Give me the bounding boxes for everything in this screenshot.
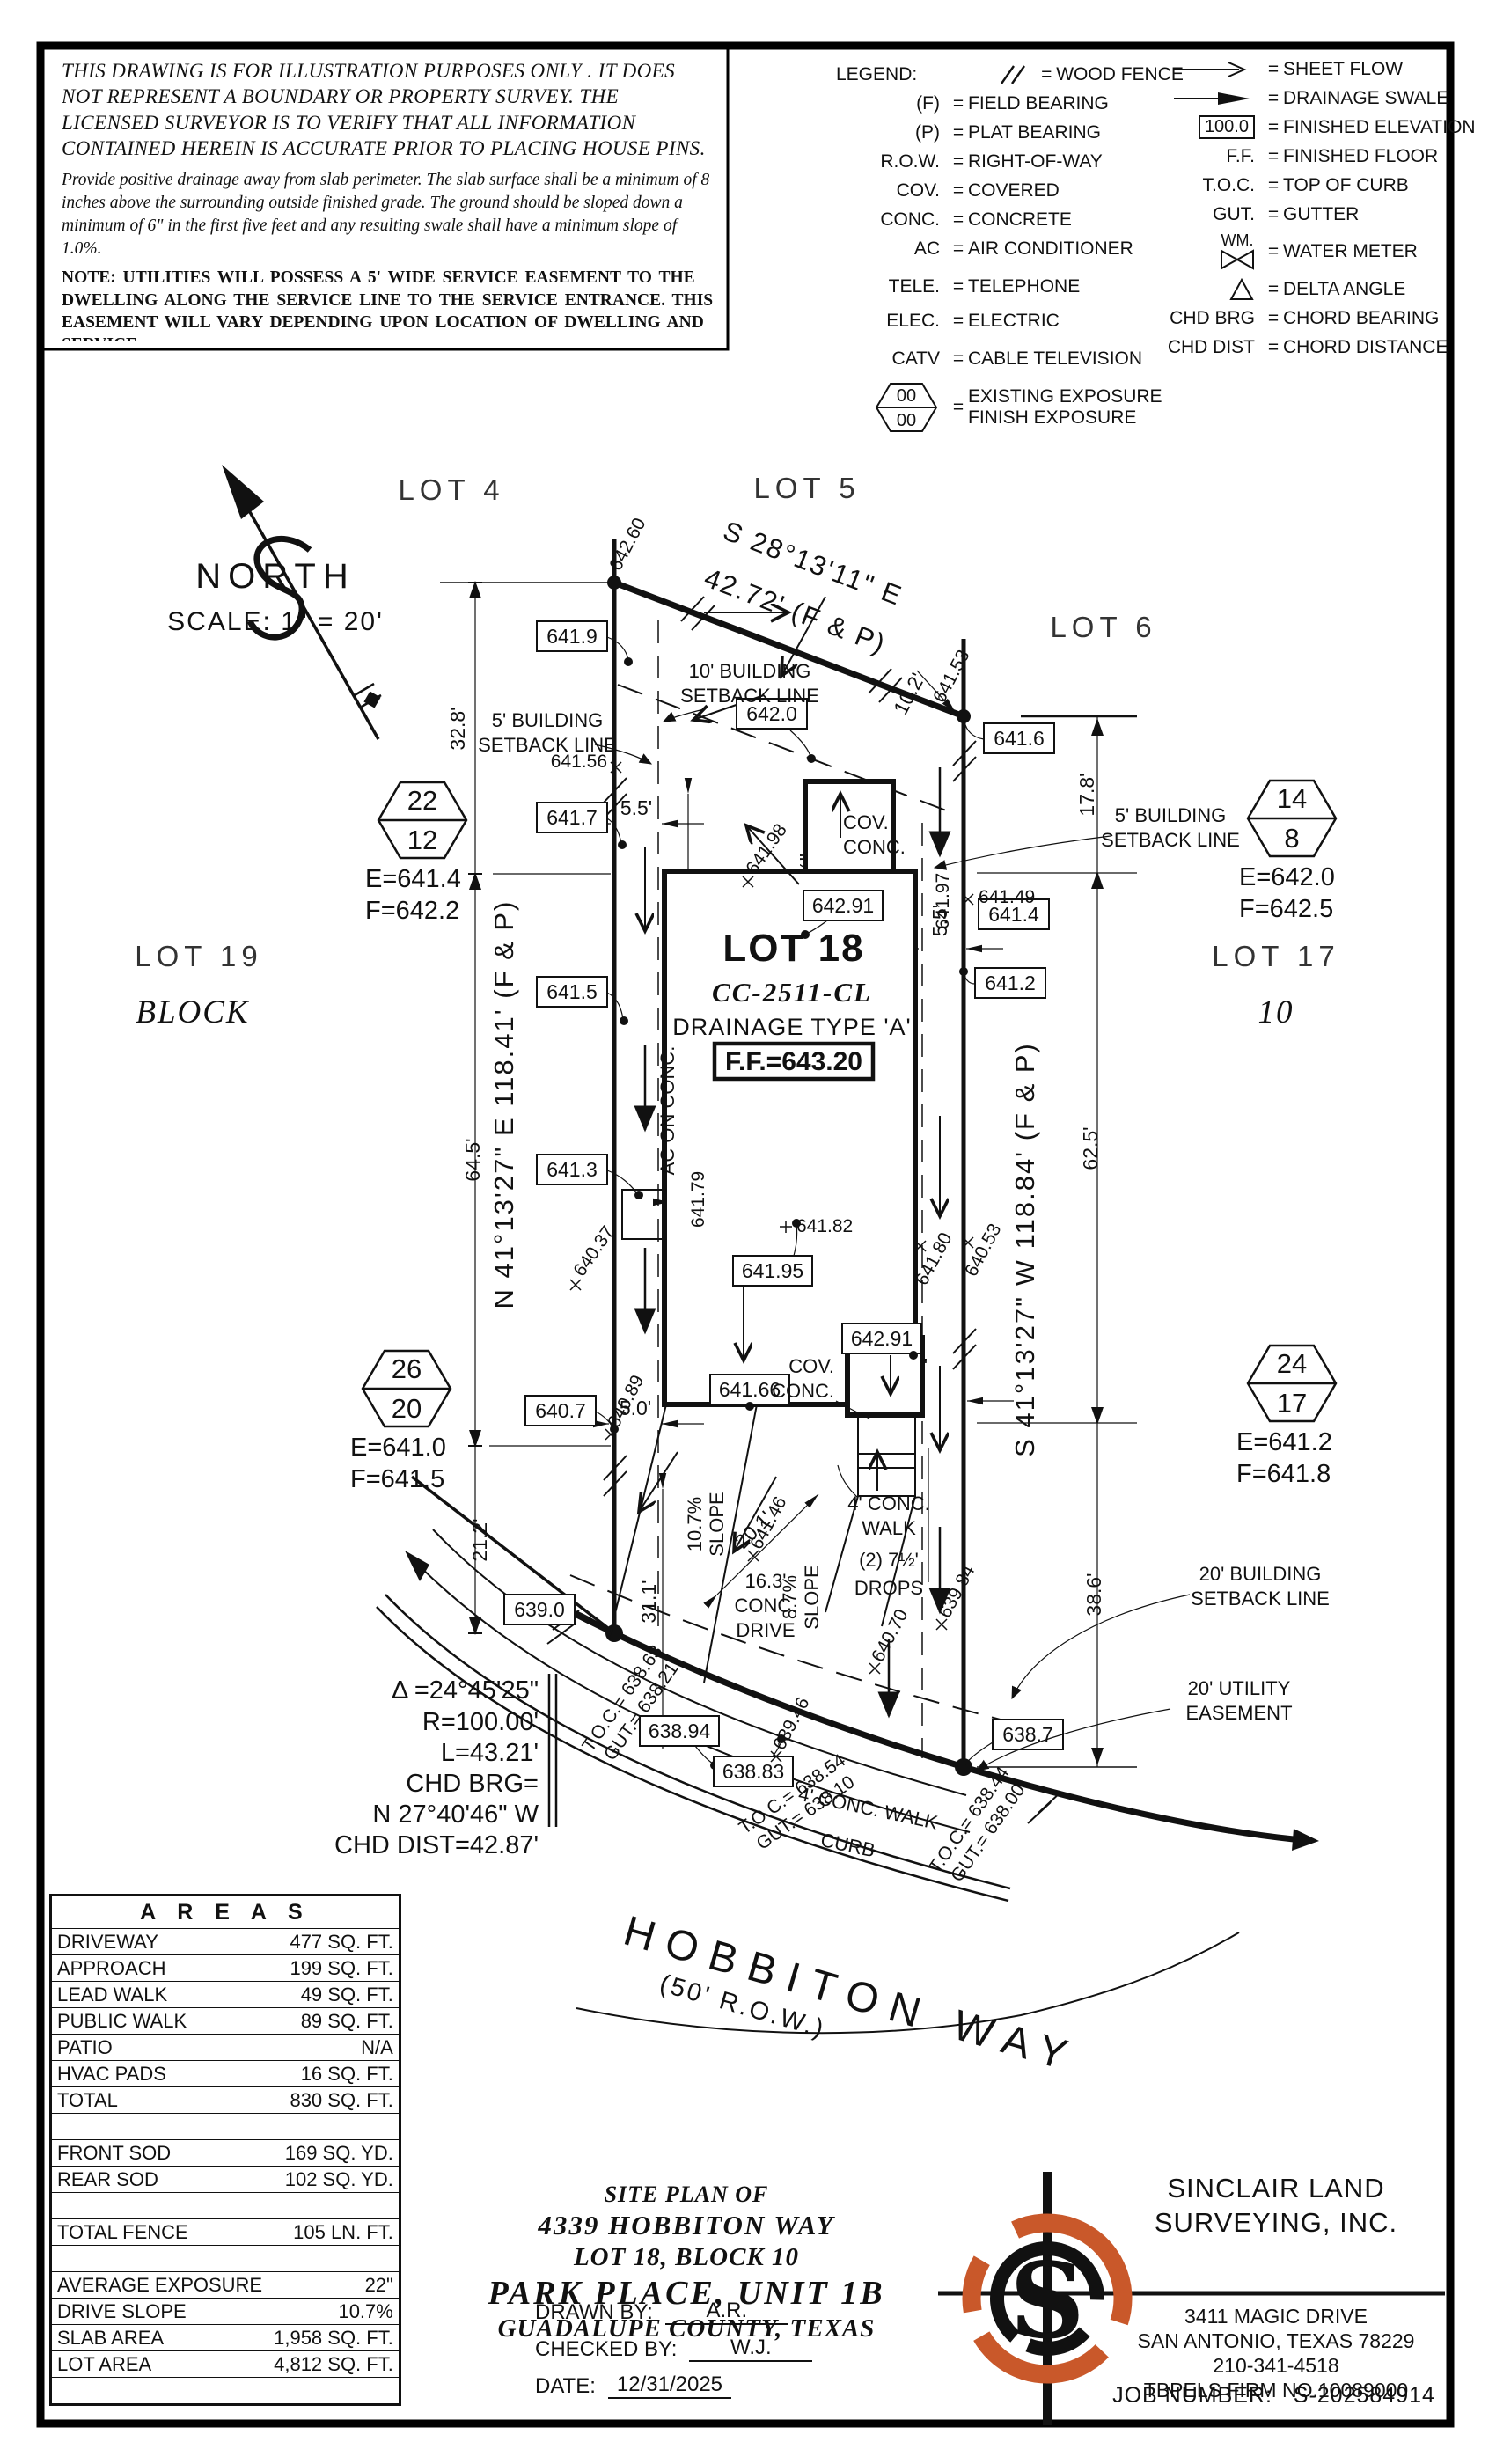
company-name-line1: SINCLAIR LAND — [1104, 2172, 1448, 2206]
svg-text:640.37: 640.37 — [569, 1222, 619, 1280]
svg-text:CONC.: CONC. — [843, 836, 906, 858]
exposure-flag-se: 24 17 — [1248, 1346, 1336, 1421]
legend-row: ELEC.=ELECTRIC — [836, 306, 1163, 335]
disclaimer-block: THIS DRAWING IS FOR ILLUSTRATION PURPOSE… — [62, 58, 715, 341]
lot6-label: LOT 6 — [1050, 611, 1156, 643]
legend-row: CHD DIST=CHORD DISTANCE — [1163, 333, 1450, 362]
exposure-finish: F=641.5 — [350, 1465, 444, 1493]
lot18-title: LOT 18 — [722, 927, 864, 970]
lot-block-line: LOT 18, BLOCK 10 — [480, 2242, 893, 2273]
table-row: AVERAGE EXPOSURE22" — [51, 2272, 400, 2299]
legend-row: =DRAINAGE SWALE — [1163, 84, 1450, 113]
exposure-finish: F=642.2 — [365, 897, 459, 925]
svg-text:Δ =24°45'25": Δ =24°45'25" — [392, 1676, 539, 1705]
legend-row: =SHEET FLOW — [1163, 55, 1450, 84]
lot5-label: LOT 5 — [753, 472, 860, 504]
legend-row: R.O.W.=RIGHT-OF-WAY — [836, 147, 1163, 176]
svg-text:AC ON CONC.: AC ON CONC. — [656, 1046, 678, 1176]
lot4-label: LOT 4 — [398, 473, 504, 506]
table-row: TOTAL FENCE105 LN. FT. — [51, 2219, 400, 2246]
svg-text:5.5': 5.5' — [620, 796, 652, 819]
lot17-label: LOT 17 — [1212, 940, 1339, 972]
svg-text:F.F.=643.20: F.F.=643.20 — [725, 1047, 862, 1076]
table-row: PUBLIC WALK89 SQ. FT. — [51, 2008, 400, 2035]
exposure-existing: E=641.4 — [365, 865, 461, 893]
svg-text:(2) 7½': (2) 7½' — [859, 1549, 919, 1571]
svg-text:26: 26 — [392, 1353, 422, 1384]
svg-text:20' BUILDING: 20' BUILDING — [1199, 1563, 1322, 1585]
finished-elevation-icon: 100.0 — [1163, 115, 1255, 139]
signature-block: DRAWN BY:A.R. CHECKED BY:W.J. DATE:12/31… — [535, 2299, 887, 2409]
table-row — [51, 2193, 400, 2219]
bearing-left: N 41°13'27" E 118.41' (F & P) — [488, 900, 519, 1309]
legend-row: CONC.=CONCRETE — [836, 205, 1163, 234]
table-row: SLAB AREA1,958 SQ. FT. — [51, 2325, 400, 2351]
svg-text:10.2': 10.2' — [889, 669, 929, 718]
svg-text:641.79: 641.79 — [688, 1171, 708, 1228]
svg-text:641.49: 641.49 — [979, 887, 1035, 907]
svg-text:20: 20 — [392, 1393, 422, 1424]
svg-text:17.8': 17.8' — [1075, 773, 1098, 816]
block-label: BLOCK — [136, 994, 250, 1030]
svg-text:638.83: 638.83 — [722, 1760, 784, 1783]
svg-text:N 27°40'46" W: N 27°40'46" W — [372, 1800, 539, 1829]
legend-right-column: =SHEET FLOW =DRAINAGE SWALE 100.0 =FINIS… — [1163, 55, 1450, 362]
legend-row: CHD BRG=CHORD BEARING — [1163, 304, 1450, 333]
svg-text:641.2: 641.2 — [985, 972, 1036, 994]
legend-row: GUT.=GUTTER — [1163, 200, 1450, 229]
legend-row: 100.0 =FINISHED ELEVATION — [1163, 113, 1450, 142]
table-row: PATION/A — [51, 2035, 400, 2061]
svg-text:CHD DIST=42.87': CHD DIST=42.87' — [334, 1831, 539, 1859]
drainage-type: DRAINAGE TYPE 'A' — [672, 1014, 911, 1040]
wood-fence-icon — [924, 64, 1028, 85]
table-row: DRIVE SLOPE10.7% — [51, 2299, 400, 2325]
svg-text:638.94: 638.94 — [649, 1720, 711, 1742]
svg-text:62.5': 62.5' — [1079, 1126, 1102, 1170]
job-number-label: JOB NUMBER: — [1112, 2383, 1272, 2408]
table-row — [51, 2378, 400, 2405]
table-row: TOTAL830 SQ. FT. — [51, 2087, 400, 2114]
svg-text:642.91: 642.91 — [851, 1327, 913, 1350]
drawn-by-value: A.R. — [665, 2299, 788, 2325]
svg-text:CONC.: CONC. — [772, 1380, 834, 1402]
svg-text:22: 22 — [407, 785, 437, 816]
utility-easement-note: NOTE: UTILITIES WILL POSSESS A 5' WIDE S… — [62, 267, 715, 341]
svg-text:10' BUILDING: 10' BUILDING — [689, 660, 811, 682]
site-plan-sheet: NORTH SCALE: 1" = 20' LOT 4 LOT 5 LOT 6 … — [0, 0, 1496, 2464]
legend-row: AC=AIR CONDITIONER — [836, 234, 1163, 263]
checked-by-value: W.J. — [689, 2336, 812, 2362]
svg-text:639.84: 639.84 — [935, 1562, 979, 1622]
legend-row: (F)=FIELD BEARING — [836, 89, 1163, 118]
exposure-finish: F=642.5 — [1239, 895, 1333, 923]
table-row: APPROACH199 SQ. FT. — [51, 1955, 400, 1982]
exposure-flag-nw: 22 12 — [378, 782, 466, 858]
svg-text:31.1': 31.1' — [637, 1580, 660, 1623]
svg-text:SETBACK LINE: SETBACK LINE — [1191, 1588, 1330, 1610]
svg-text:4' CONC.: 4' CONC. — [847, 1492, 929, 1514]
legend-row: T.O.C.=TOP OF CURB — [1163, 171, 1450, 200]
company-phone: 210-341-4518 — [1104, 2353, 1448, 2378]
water-meter-icon: WM. — [1163, 232, 1255, 272]
exposure-existing: E=642.0 — [1239, 863, 1335, 891]
svg-text:L=43.21': L=43.21' — [441, 1739, 539, 1767]
table-row: HVAC PADS16 SQ. FT. — [51, 2061, 400, 2087]
legend-row-exposure: 00 00 = EXISTING EXPOSUREFINISH EXPOSURE — [836, 373, 1163, 442]
svg-text:641.7: 641.7 — [546, 806, 598, 829]
disclaimer-text: THIS DRAWING IS FOR ILLUSTRATION PURPOSE… — [62, 58, 715, 162]
svg-text:641.5: 641.5 — [546, 980, 598, 1003]
exposure-flag-sw: 26 20 — [363, 1351, 451, 1426]
svg-text:5' BUILDING: 5' BUILDING — [492, 709, 603, 731]
legend-row: CATV=CABLE TELEVISION — [836, 344, 1163, 373]
svg-text:32.8': 32.8' — [446, 707, 469, 750]
svg-text:641.82: 641.82 — [796, 1216, 853, 1236]
svg-text:638.7: 638.7 — [1002, 1723, 1053, 1746]
table-row: REAR SOD102 SQ. YD. — [51, 2167, 400, 2193]
job-number: JOB NUMBER: S-202584914 — [1096, 2383, 1452, 2409]
svg-text:WALK: WALK — [862, 1517, 916, 1539]
table-row: LOT AREA4,812 SQ. FT. — [51, 2351, 400, 2378]
legend-row: COV.=COVERED — [836, 176, 1163, 205]
svg-text:21.2': 21.2' — [468, 1518, 491, 1561]
company-name: SINCLAIR LAND SURVEYING, INC. — [1104, 2172, 1448, 2240]
svg-text:COV.: COV. — [843, 811, 889, 833]
svg-text:642.91: 642.91 — [812, 894, 874, 917]
company-name-line2: SURVEYING, INC. — [1104, 2206, 1448, 2240]
svg-text:5' BUILDING: 5' BUILDING — [1115, 804, 1226, 826]
address-line: 4339 HOBBITON WAY — [480, 2209, 893, 2242]
legend-row: =DELTA ANGLE — [1163, 275, 1450, 304]
date-value: 12/31/2025 — [608, 2372, 731, 2399]
svg-text:8.7%: 8.7% — [779, 1575, 801, 1619]
lot18-plan-number: CC-2511-CL — [712, 977, 872, 1008]
title-line: SITE PLAN OF — [480, 2181, 893, 2209]
svg-text:SLOPE: SLOPE — [801, 1565, 823, 1629]
exposure-existing: E=641.0 — [350, 1434, 446, 1462]
svg-text:641.95: 641.95 — [742, 1259, 803, 1282]
svg-text:SETBACK LINE: SETBACK LINE — [680, 685, 819, 707]
legend-title: LEGEND: — [836, 64, 917, 85]
svg-text:38.6': 38.6' — [1082, 1573, 1105, 1616]
legend-row: TELE.=TELEPHONE — [836, 272, 1163, 301]
svg-text:R=100.00': R=100.00' — [422, 1708, 539, 1736]
svg-text:12: 12 — [407, 825, 437, 855]
svg-text:SETBACK LINE: SETBACK LINE — [1101, 829, 1240, 851]
exposure-hexagon-icon: 00 00 — [836, 378, 940, 436]
legend-row: WM. =WATER METER — [1163, 229, 1450, 275]
svg-text:640.70: 640.70 — [868, 1606, 912, 1666]
logo-monogram: S — [1009, 2240, 1084, 2362]
legend-row: LEGEND: = WOOD FENCE — [836, 60, 1163, 89]
svg-text:641.9: 641.9 — [546, 625, 598, 648]
svg-text:641.80: 641.80 — [912, 1229, 956, 1289]
legend-row: (P)=PLAT BEARING — [836, 118, 1163, 147]
areas-table: A R E A S DRIVEWAY477 SQ. FT. APPROACH19… — [49, 1894, 401, 2406]
svg-text:10.7%: 10.7% — [684, 1497, 706, 1551]
drainage-swale-icon — [1163, 90, 1255, 107]
svg-text:DROPS: DROPS — [854, 1577, 923, 1599]
job-number-value: S-202584914 — [1294, 2383, 1435, 2408]
svg-text:14: 14 — [1277, 783, 1307, 814]
block-number: 10 — [1258, 994, 1294, 1030]
svg-text:EASEMENT: EASEMENT — [1185, 1702, 1292, 1724]
svg-text:640.7: 640.7 — [535, 1399, 586, 1422]
date-label: DATE: — [535, 2374, 596, 2399]
table-row: FRONT SOD169 SQ. YD. — [51, 2140, 400, 2167]
svg-text:641.6: 641.6 — [994, 727, 1045, 750]
svg-text:64.5': 64.5' — [461, 1138, 484, 1181]
finished-floor-box: F.F.=643.20 — [715, 1044, 873, 1079]
company-city: SAN ANTONIO, TEXAS 78229 — [1104, 2328, 1448, 2353]
table-row — [51, 2114, 400, 2140]
svg-text:640.53: 640.53 — [961, 1221, 1005, 1280]
areas-title: A R E A S — [51, 1896, 400, 1929]
company-street: 3411 MAGIC DRIVE — [1104, 2304, 1448, 2328]
drainage-note: Provide positive drainage away from slab… — [62, 169, 715, 260]
drawn-by-label: DRAWN BY: — [535, 2300, 653, 2325]
legend-row: F.F.=FINISHED FLOOR — [1163, 142, 1450, 171]
table-row: LEAD WALK49 SQ. FT. — [51, 1982, 400, 2008]
svg-text:20' UTILITY: 20' UTILITY — [1188, 1677, 1291, 1699]
svg-text:24: 24 — [1277, 1348, 1307, 1379]
svg-text:8: 8 — [1284, 823, 1299, 854]
curve-data: Δ =24°45'25" R=100.00' L=43.21' CHD BRG=… — [334, 1674, 556, 1859]
svg-text:00: 00 — [897, 411, 916, 430]
north-arrow-icon — [222, 465, 381, 739]
scale-label: SCALE: 1" = 20' — [167, 607, 384, 636]
svg-text:00: 00 — [897, 386, 916, 406]
svg-text:17: 17 — [1277, 1388, 1307, 1419]
exposure-finish: F=641.8 — [1236, 1460, 1331, 1488]
exposure-flag-ne: 14 8 — [1248, 781, 1336, 856]
table-row — [51, 2246, 400, 2272]
table-row: DRIVEWAY477 SQ. FT. — [51, 1929, 400, 1955]
svg-text:COV.: COV. — [788, 1355, 834, 1377]
checked-by-label: CHECKED BY: — [535, 2337, 677, 2362]
legend-left-column: LEGEND: = WOOD FENCE (F)=FIELD BEARING (… — [836, 60, 1163, 442]
north-label: NORTH — [195, 557, 355, 596]
sheet-flow-icon — [1163, 61, 1255, 78]
svg-text:CHD BRG=: CHD BRG= — [406, 1770, 539, 1798]
exposure-existing: E=641.2 — [1236, 1428, 1332, 1456]
delta-angle-icon — [1163, 277, 1255, 302]
svg-text:641.97: 641.97 — [933, 873, 953, 929]
svg-text:641.53: 641.53 — [929, 647, 973, 707]
svg-text:SLOPE: SLOPE — [706, 1492, 728, 1556]
bearing-right: S 41°13'27" W 118.84' (F & P) — [1009, 1042, 1040, 1457]
lot19-label: LOT 19 — [135, 940, 262, 972]
svg-text:639.0: 639.0 — [514, 1598, 565, 1621]
svg-text:DRIVE: DRIVE — [736, 1619, 795, 1641]
svg-text:641.3: 641.3 — [546, 1158, 598, 1181]
